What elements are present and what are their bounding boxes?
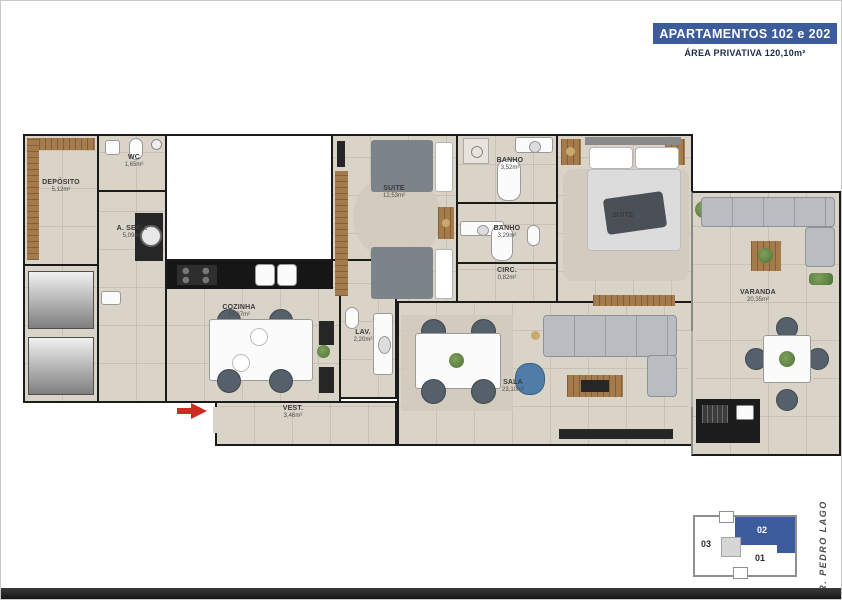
nightstand-figure — [438, 207, 454, 239]
tv-panel-figure — [337, 141, 345, 167]
patio-glass-door — [688, 331, 696, 407]
cooktop-figure — [177, 265, 217, 285]
round-dining-table-figure — [763, 335, 811, 383]
plant-figure — [317, 345, 330, 358]
nightstand-figure — [561, 139, 581, 165]
elevator-icon — [733, 567, 748, 579]
double-bed-figure — [585, 137, 681, 251]
oven-tower-figure — [319, 321, 334, 345]
bench-figure — [593, 295, 675, 306]
room-label-wc: WC1,65m² — [99, 154, 169, 170]
sofa-figure — [543, 315, 677, 357]
building-key-plan: 03 02 01 — [689, 509, 807, 585]
entry-arrow-icon — [177, 403, 207, 419]
private-area-subtitle: ÁREA PRIVATIVA 120,10m² — [653, 48, 837, 58]
apartment-title-banner: APARTAMENTOS 102 e 202 — [653, 23, 837, 44]
lavabo-toilet-figure — [345, 307, 359, 329]
room-label-varanda: VARANDA20,35m² — [708, 289, 808, 305]
room-label-circulacao: CIRC.0,82m² — [457, 267, 557, 283]
key-plan-unit-01-label: 01 — [755, 553, 765, 563]
key-plan-unit-02-label: 02 — [757, 525, 767, 535]
appliance-figure — [28, 337, 94, 395]
planter-figure — [809, 273, 833, 285]
room-label-sala: SALA23,10m² — [463, 379, 563, 395]
room-label-lavabo: LAV.2,20m² — [333, 329, 393, 345]
room-label-cozinha: COZINHA13,37m² — [189, 304, 289, 320]
stool-figure — [217, 369, 241, 393]
room-label-vestibulo: VEST.3,46m² — [243, 405, 343, 421]
tv-console-figure — [559, 429, 673, 439]
room-label-suite-1: SUITE12,53m² — [344, 185, 444, 201]
plant-figure — [758, 248, 773, 263]
kitchen-sink-figure — [255, 264, 275, 286]
room-label-area-servico: A. SERV.5,09m² — [97, 225, 167, 241]
appliance-figure — [28, 271, 94, 329]
outdoor-sofa-figure — [701, 197, 835, 227]
stool-figure — [269, 369, 293, 393]
kitchen-sink-figure — [277, 264, 297, 286]
stairwell-cross-icon — [165, 134, 333, 261]
room-label-suite-2: SUITE15,78m² — [573, 212, 673, 228]
street-label: R. PEDRO LAGO — [818, 491, 828, 600]
outdoor-sofa-figure — [805, 227, 835, 267]
entry-door-opening — [213, 407, 220, 433]
single-bed-figure — [371, 245, 454, 301]
key-plan-unit-02-highlight — [777, 545, 795, 553]
key-plan-unit-03-label: 03 — [701, 539, 711, 549]
floorplan-page: APARTAMENTOS 102 e 202 ÁREA PRIVATIVA 12… — [0, 0, 842, 600]
sofa-chaise-figure — [647, 355, 677, 397]
wc-sink-figure — [105, 140, 120, 155]
laundry-tank-figure — [101, 291, 121, 305]
bbq-counter-figure — [696, 399, 760, 443]
storage-shelf-figure — [27, 138, 39, 260]
floor-lamp-figure — [531, 331, 540, 340]
room-label-banho-1: BANHO3,52m² — [460, 157, 560, 173]
dining-chair-figure — [421, 379, 446, 404]
room-label-deposito: DEPÓSITO5,12m² — [25, 179, 97, 195]
outdoor-chair-figure — [776, 389, 798, 411]
key-plan-core — [721, 537, 741, 557]
bottom-border-bar — [1, 588, 842, 600]
storage-shelf-figure — [39, 138, 95, 150]
room-label-banho-2: BANHO3,29m² — [457, 225, 557, 241]
oven-tower-figure — [319, 367, 334, 393]
centerpiece-plant-figure — [449, 353, 464, 368]
vanity-figure — [515, 137, 553, 153]
coffee-table-figure — [567, 375, 623, 397]
elevator-icon — [719, 511, 734, 523]
shower-head-figure — [151, 139, 162, 150]
